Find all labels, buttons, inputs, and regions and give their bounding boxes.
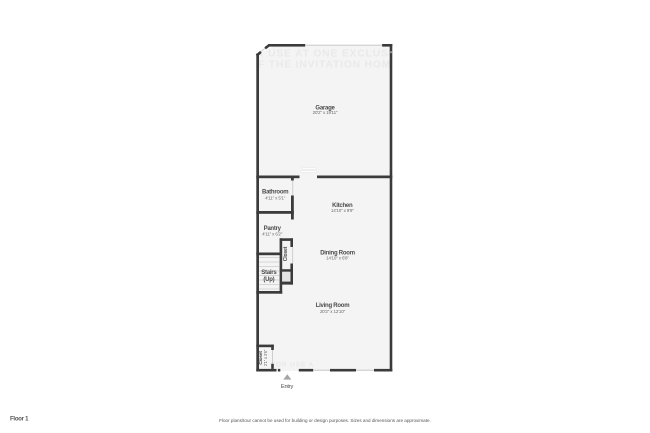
svg-text:OF THE INVITATION HOME: OF THE INVITATION HOME	[249, 59, 399, 70]
svg-text:Floor plans/tour cannot be use: Floor plans/tour cannot be used for buil…	[219, 418, 431, 423]
svg-text:Closet: Closet	[283, 246, 289, 261]
svg-text:14'10" x 9'9": 14'10" x 9'9"	[331, 208, 354, 213]
svg-text:4'11" x 5'1": 4'11" x 5'1"	[265, 196, 286, 201]
svg-text:(Up): (Up)	[263, 277, 274, 283]
svg-text:FOR USE AT ONE EXCLUSIVE: FOR USE AT ONE EXCLUSIVE	[240, 49, 408, 60]
svg-text:20'2" x 19'11": 20'2" x 19'11"	[313, 110, 338, 115]
svg-text:Stairs: Stairs	[261, 270, 277, 276]
svg-text:14'10" x 6'8": 14'10" x 6'8"	[326, 255, 349, 260]
svg-text:FOR USE A: FOR USE A	[271, 362, 314, 369]
svg-text:20'2" x 12'10": 20'2" x 12'10"	[320, 309, 346, 314]
svg-text:Entry: Entry	[281, 384, 294, 390]
svg-text:4'11" x 6'2": 4'11" x 6'2"	[262, 231, 283, 236]
svg-text:2'1" x 3'6": 2'1" x 3'6"	[263, 349, 268, 366]
svg-text:Floor 1: Floor 1	[10, 417, 29, 423]
